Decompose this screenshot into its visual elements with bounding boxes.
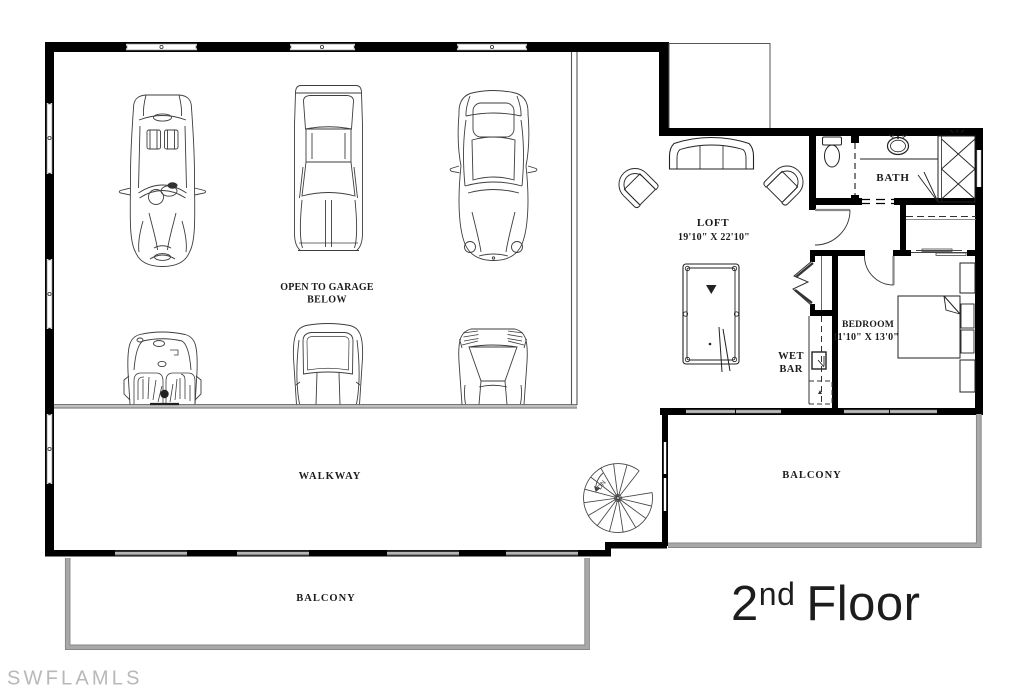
svg-text:BALCONY: BALCONY — [782, 470, 842, 481]
svg-text:BEDROOM: BEDROOM — [842, 319, 894, 330]
svg-text:WET: WET — [778, 351, 804, 362]
svg-text:SWFLAMLS: SWFLAMLS — [7, 668, 143, 689]
svg-text:LOFT: LOFT — [697, 217, 729, 229]
svg-text:BATH: BATH — [876, 172, 910, 184]
svg-text:WALKWAY: WALKWAY — [299, 471, 362, 482]
svg-text:19'10" X 22'10": 19'10" X 22'10" — [678, 232, 750, 243]
svg-text:BELOW: BELOW — [307, 295, 347, 306]
svg-text:11'10" X 13'0": 11'10" X 13'0" — [833, 332, 899, 343]
svg-text:BAR: BAR — [779, 364, 802, 375]
svg-text:BALCONY: BALCONY — [296, 593, 356, 604]
svg-text:OPEN TO GARAGE: OPEN TO GARAGE — [280, 282, 374, 293]
